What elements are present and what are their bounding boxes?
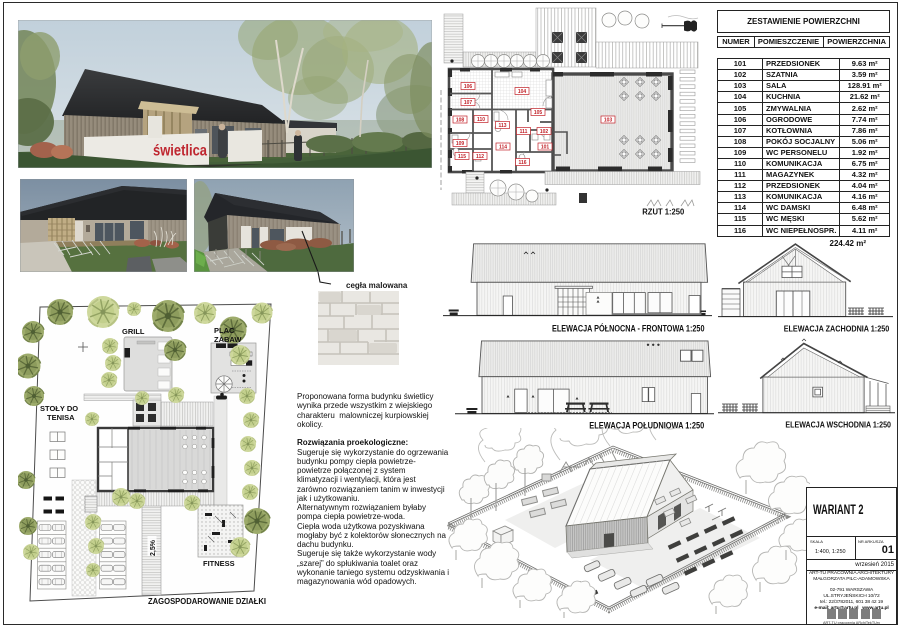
svg-text:ZAGOSPODAROWANIE DZIAŁKI: ZAGOSPODAROWANIE DZIAŁKI: [148, 597, 266, 606]
svg-text:112: 112: [476, 154, 484, 160]
svg-text:107: 107: [464, 100, 473, 106]
svg-text:FITNESS: FITNESS: [203, 559, 235, 568]
svg-text:ELEWACJA PÓŁNOCNA - FRONTOWA: ELEWACJA PÓŁNOCNA - FRONTOWA 1:250: [552, 323, 705, 334]
svg-text:ELEWACJA ZACHODNIA 1:250: ELEWACJA ZACHODNIA 1:250: [784, 324, 890, 334]
svg-text:świetlica: świetlica: [153, 143, 207, 160]
svg-text:109: 109: [456, 141, 465, 147]
svg-text:ZABAW: ZABAW: [214, 335, 242, 344]
svg-text:110: 110: [477, 117, 485, 123]
svg-text:RZUT 1:250: RZUT 1:250: [642, 207, 684, 217]
svg-text:116: 116: [518, 160, 526, 166]
svg-text:104: 104: [518, 89, 527, 95]
svg-text:101: 101: [541, 144, 550, 150]
svg-text:PLAC: PLAC: [214, 326, 235, 335]
svg-text:GRILL: GRILL: [122, 327, 145, 336]
svg-text:2,5%: 2,5%: [150, 539, 157, 556]
svg-text:102: 102: [540, 129, 549, 135]
svg-text:103: 103: [604, 117, 613, 123]
svg-text:108: 108: [456, 117, 465, 123]
svg-text:111: 111: [520, 129, 528, 135]
svg-text:113: 113: [498, 123, 506, 129]
svg-text:TENISA: TENISA: [47, 413, 75, 422]
svg-text:105: 105: [534, 110, 543, 116]
svg-text:STOŁY DO: STOŁY DO: [40, 404, 78, 413]
svg-text:106: 106: [464, 84, 473, 90]
svg-text:115: 115: [458, 154, 466, 160]
svg-text:114: 114: [499, 144, 507, 150]
